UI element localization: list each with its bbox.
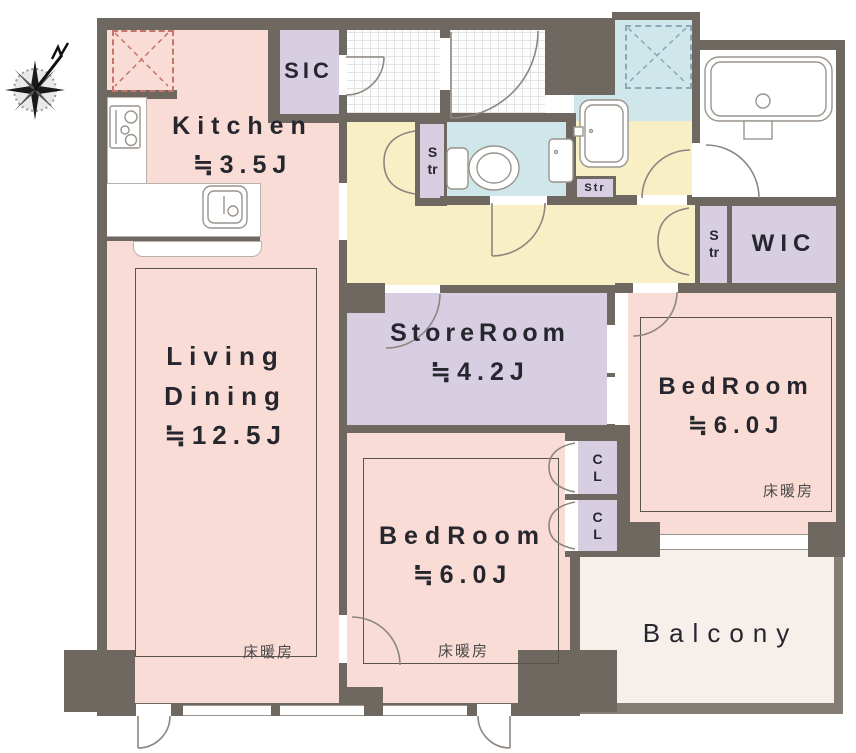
str-hall-name: Str [426,144,439,178]
str-washroom-label: Str [577,179,613,197]
bathtub-icon [705,57,832,139]
bedroom-center-floor-heating-label: 床暖房 [438,640,489,661]
str-washroom-name: Str [584,182,605,194]
floor-plan: Kitchen ≒3.5J SIC Living Dining ≒12.5J 床… [0,0,856,753]
compass-icon [0,35,80,135]
bedroom-right-label: BedRoom ≒6.0J [636,370,836,442]
refrigerator-space-cross [115,33,168,86]
toilet-icon [447,146,519,190]
living-dining-label: Living Dining ≒12.5J [118,332,333,458]
storeroom-label: StoreRoom ≒4.2J [360,318,600,386]
str-right-name: Str [708,227,721,261]
kitchen-size: ≒3.5J [193,146,293,184]
kitchen-label: Kitchen ≒3.5J [120,108,365,182]
cl-upper-name: CL [592,451,603,485]
living-size: ≒12.5J [164,416,287,454]
sic-label: SIC [278,28,339,114]
cl-lower-name: CL [592,509,603,543]
storeroom-name: StoreRoom [390,313,570,353]
bedroom-center-size: ≒6.0J [413,556,513,594]
cl-upper-label: CL [586,451,609,485]
washer-space-cross [628,28,686,83]
str-right-label: Str [701,212,727,276]
living-line1: Living [166,336,285,376]
sic-name: SIC [284,58,333,84]
storeroom-size: ≒4.2J [430,353,530,391]
bedroom-center-name: BedRoom [379,516,546,556]
bedroom-right-floor-heating-label: 床暖房 [763,480,814,501]
balcony-name: Balcony [643,613,799,653]
cl-lower-label: CL [586,509,609,543]
living-line2: Dining [164,376,287,416]
living-floor-heating-label: 床暖房 [243,641,294,662]
bedroom-right-name: BedRoom [658,367,813,407]
wic-name: WIC [752,230,817,258]
bedroom-center-label: BedRoom ≒6.0J [355,518,570,592]
kitchen-sink-icon [203,186,247,228]
washbasin-icon [574,100,628,167]
bedroom-right-size: ≒6.0J [688,407,785,445]
wic-label: WIC [732,205,836,283]
hand-basin-icon [549,139,573,182]
str-hall-label: Str [421,129,444,193]
balcony-label: Balcony [598,613,843,653]
